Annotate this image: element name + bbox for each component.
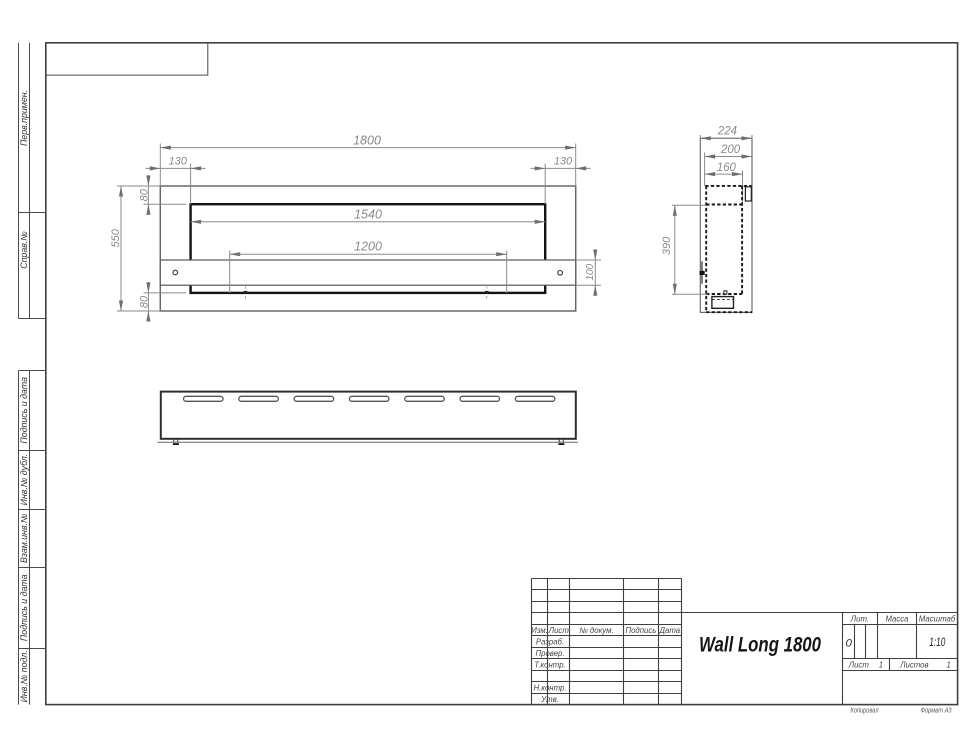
svg-text:№ докум.: № докум. xyxy=(579,626,613,635)
svg-text:1200: 1200 xyxy=(354,240,382,254)
svg-text:1540: 1540 xyxy=(354,208,382,222)
svg-text:Лист: Лист xyxy=(548,626,570,635)
svg-text:130: 130 xyxy=(554,155,573,167)
svg-text:80: 80 xyxy=(138,295,150,308)
svg-text:Масштаб: Масштаб xyxy=(919,614,956,623)
svg-text:Утв.: Утв. xyxy=(540,695,559,704)
svg-text:Инв.№ дубл.: Инв.№ дубл. xyxy=(19,454,29,506)
svg-text:160: 160 xyxy=(717,162,737,174)
svg-text:1: 1 xyxy=(947,661,951,670)
svg-text:200: 200 xyxy=(720,144,741,156)
svg-text:Провер.: Провер. xyxy=(535,649,564,658)
svg-text:Подпись и дата: Подпись и дата xyxy=(19,574,29,641)
svg-text:550: 550 xyxy=(110,228,122,247)
svg-text:Формат А3: Формат А3 xyxy=(921,708,952,715)
svg-text:1:10: 1:10 xyxy=(929,637,945,649)
svg-text:Разраб.: Разраб. xyxy=(536,638,564,647)
svg-text:Лист: Лист xyxy=(848,661,870,670)
svg-text:Н.контр.: Н.контр. xyxy=(533,684,566,693)
svg-text:Перв.примен.: Перв.примен. xyxy=(19,90,29,146)
svg-text:Дата: Дата xyxy=(659,626,681,635)
svg-text:Взам.инв.№: Взам.инв.№ xyxy=(19,513,29,563)
svg-text:Подпись: Подпись xyxy=(625,626,656,635)
svg-text:224: 224 xyxy=(717,126,737,138)
svg-text:130: 130 xyxy=(169,155,188,167)
svg-text:Копировал: Копировал xyxy=(851,708,879,715)
svg-text:80: 80 xyxy=(138,188,150,201)
svg-text:Т.контр.: Т.контр. xyxy=(534,661,565,670)
svg-text:1: 1 xyxy=(879,661,883,670)
svg-text:100: 100 xyxy=(585,263,596,280)
svg-text:Wall Long 1800: Wall Long 1800 xyxy=(699,633,821,657)
svg-text:Справ.№: Справ.№ xyxy=(19,231,29,269)
svg-text:1800: 1800 xyxy=(353,134,381,148)
svg-text:Масса: Масса xyxy=(885,614,909,623)
svg-text:Подпись и дата: Подпись и дата xyxy=(19,377,29,444)
svg-text:Изм.: Изм. xyxy=(531,626,548,635)
svg-text:Листов: Листов xyxy=(899,661,928,670)
svg-text:Лит.: Лит. xyxy=(850,614,869,623)
svg-text:390: 390 xyxy=(661,236,673,255)
svg-text:Инв.№ подл.: Инв.№ подл. xyxy=(19,650,29,702)
svg-text:0: 0 xyxy=(846,638,853,650)
